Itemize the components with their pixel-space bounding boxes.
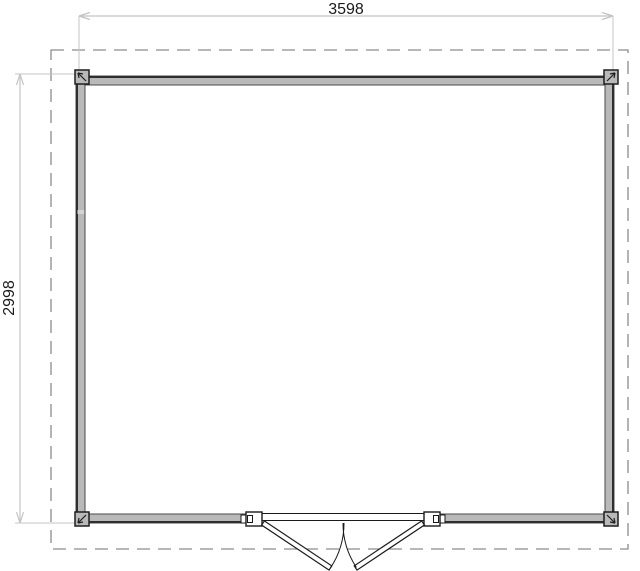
corner-post-top-right (604, 70, 618, 84)
door-swing-arc-left (330, 523, 344, 568)
floor-plan-canvas: 3598 2998 (0, 0, 640, 571)
door-leaf-left (262, 521, 332, 570)
door-frame-header (262, 514, 424, 521)
corner-post-bottom-left (75, 512, 89, 526)
roof-overhang-outline (51, 50, 628, 549)
corner-post-bottom-right (604, 512, 618, 526)
width-dimension-label: 3598 (328, 1, 364, 18)
door-leaf-right (354, 521, 424, 570)
corner-post-top-left (75, 70, 89, 84)
floor-plan-page: 3598 2998 (0, 0, 640, 571)
height-dimension: 2998 (1, 74, 78, 523)
door-swing-arc-right (343, 523, 356, 567)
wall-board-joint (78, 210, 85, 214)
height-dimension-label: 2998 (1, 280, 18, 316)
exterior-walls (75, 76, 615, 523)
double-door (241, 512, 445, 570)
width-dimension: 3598 (79, 1, 613, 72)
corner-posts (75, 70, 618, 526)
